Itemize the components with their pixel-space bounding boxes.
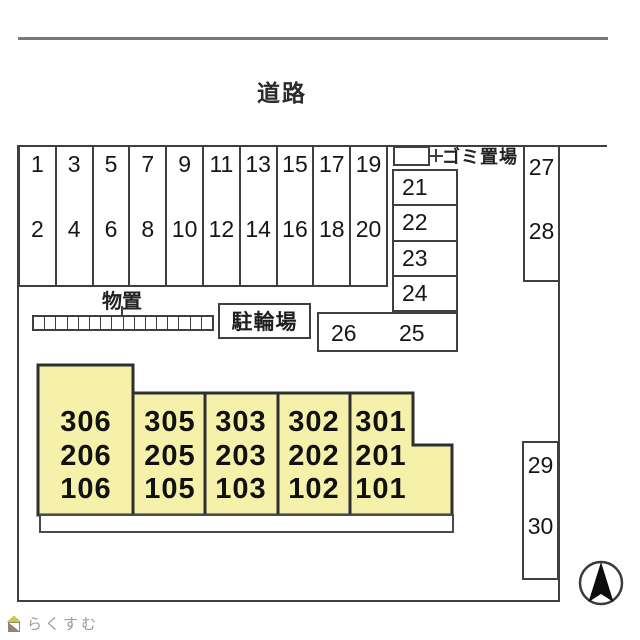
site-plan: 道路 1234567891011121314151617181920 ゴミ置場 … xyxy=(0,0,640,640)
room-number: 301 xyxy=(326,406,436,440)
room-number: 201 xyxy=(326,440,436,474)
porch-strip xyxy=(40,515,453,532)
building-unit: 301201101 xyxy=(326,406,436,507)
plan-shapes xyxy=(0,0,640,640)
room-number: 101 xyxy=(326,473,436,507)
north-arrow-icon xyxy=(589,562,614,602)
